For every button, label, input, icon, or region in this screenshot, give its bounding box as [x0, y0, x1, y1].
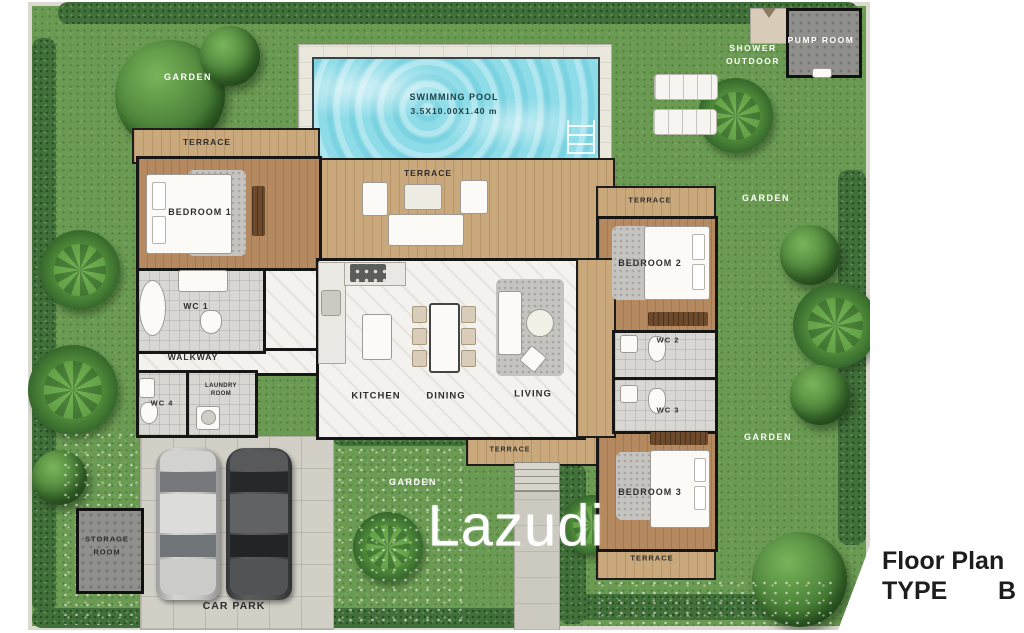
pump-room-door	[812, 68, 832, 78]
palm-tree	[28, 345, 118, 435]
pump-room-label: PUMP ROOM	[788, 35, 855, 45]
dining-chair	[412, 350, 427, 367]
sink	[620, 335, 638, 353]
dining-chair	[412, 306, 427, 323]
stove-icon	[350, 264, 386, 282]
room-label-laundry: LAUNDRY	[205, 383, 237, 389]
round-coffee-table	[526, 309, 554, 337]
garden-label: GARDEN	[164, 72, 212, 82]
plan-type-value: B	[998, 576, 1016, 606]
pillow	[694, 458, 706, 482]
sink	[620, 385, 638, 403]
sink	[139, 378, 155, 398]
washer-door	[201, 410, 216, 425]
room-label-wc1: WC 1	[183, 301, 208, 311]
room-label-walkway: WALKWAY	[168, 352, 219, 362]
entry-steps	[514, 462, 560, 492]
wardrobe	[648, 312, 708, 326]
car-dark	[226, 448, 292, 600]
toilet	[200, 310, 222, 334]
terrace-label: TERRACE	[630, 554, 673, 563]
tree	[790, 365, 850, 425]
hedge-top	[58, 2, 858, 24]
shower-outdoor-label: OUTDOOR	[726, 56, 780, 66]
dining-chair	[461, 350, 476, 367]
garden-label: GARDEN	[389, 477, 437, 487]
terrace-label: TERRACE	[628, 196, 671, 205]
hedge-left	[32, 38, 56, 612]
flower-bed	[594, 578, 836, 628]
armchair	[460, 180, 488, 214]
pillow	[152, 216, 166, 244]
room-hallway	[260, 268, 322, 354]
outdoor-sofa	[388, 214, 464, 246]
tree	[780, 225, 840, 285]
pool-ladder-icon	[567, 120, 595, 154]
sun-lounger	[654, 74, 718, 100]
palm-tree	[793, 283, 878, 368]
dining-table	[429, 303, 460, 373]
bathtub	[139, 280, 166, 336]
car-park-label: CAR PARK	[203, 600, 266, 612]
room-label-wc3: WC 3	[657, 406, 680, 415]
wardrobe	[252, 186, 265, 236]
pillow	[152, 182, 166, 210]
garden-label: GARDEN	[744, 432, 792, 442]
terrace-label: TERRACE	[404, 168, 452, 178]
shower-outdoor-label: SHOWER	[729, 43, 776, 53]
kitchen-island	[362, 314, 392, 360]
room-label-wc2: WC 2	[657, 336, 680, 345]
room-label-laundry: ROOM	[211, 391, 231, 397]
terrace-label: TERRACE	[490, 447, 531, 454]
room-label-dining: DINING	[426, 391, 465, 402]
room-label-wc4: WC 4	[151, 399, 174, 408]
room-label-kitchen: KITCHEN	[351, 391, 400, 402]
plan-title: Floor Plan TYPE B	[882, 546, 1016, 606]
armchair	[362, 182, 388, 216]
dining-chair	[412, 328, 427, 345]
room-label-bedroom2: BEDROOM 2	[618, 258, 682, 268]
room-label-storage: ROOM	[93, 548, 120, 557]
wardrobe	[650, 432, 708, 445]
room-label-bedroom1: BEDROOM 1	[168, 207, 232, 217]
dining-chair	[461, 306, 476, 323]
sun-lounger	[653, 109, 717, 135]
watermark: Lazudi	[428, 493, 605, 560]
floor-plan-canvas: SWIMMING POOL 3.5X10.00X1.40 m GARDEN GA…	[0, 0, 1024, 633]
corridor	[576, 258, 616, 438]
room-label-storage: STORAGE	[85, 535, 129, 544]
sofa	[498, 291, 522, 355]
double-sink	[178, 270, 228, 292]
plan-title-name: Floor Plan	[882, 546, 1016, 576]
pillow	[692, 264, 705, 290]
dining-chair	[461, 328, 476, 345]
room-label-living: LIVING	[514, 389, 552, 400]
kitchen-sink	[321, 290, 341, 316]
pool-size-label: 3.5X10.00X1.40 m	[411, 106, 498, 116]
car-silver	[156, 448, 220, 600]
pillow	[694, 486, 706, 510]
coffee-table	[404, 184, 442, 210]
pillow	[692, 234, 705, 260]
room-label-bedroom3: BEDROOM 3	[618, 487, 682, 497]
terrace-label: TERRACE	[183, 137, 231, 147]
plan-type-label: TYPE	[882, 576, 947, 606]
pool-label: SWIMMING POOL	[410, 92, 499, 102]
garden-label: GARDEN	[742, 193, 790, 203]
palm-tree	[40, 230, 120, 310]
